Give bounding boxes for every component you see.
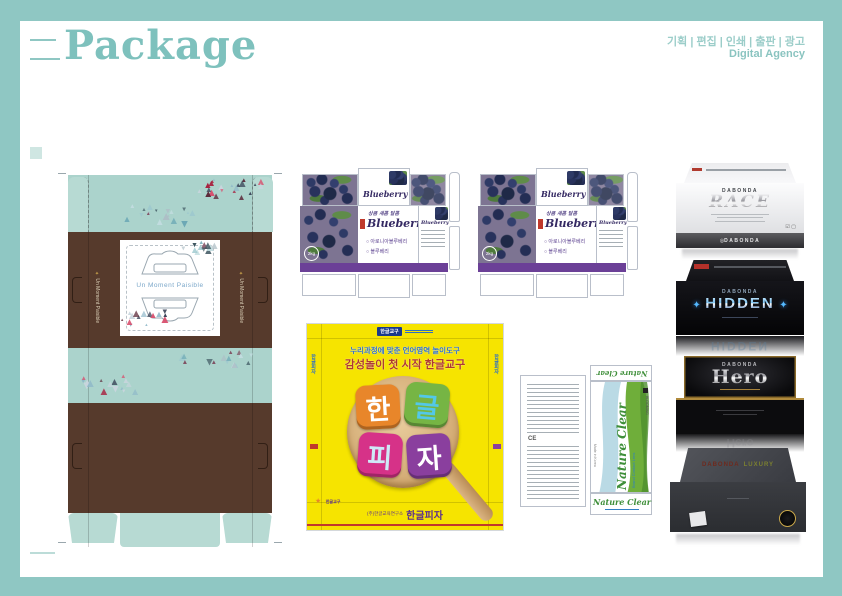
title-dash-icon: [30, 39, 56, 41]
triangle-glyph: ▲: [125, 318, 135, 328]
fine-print: [421, 230, 445, 248]
page-title: Package: [64, 22, 257, 69]
bottom-flap: [536, 274, 588, 298]
triangle-glyph: ▲: [144, 323, 148, 327]
triangle-glyph: ▲: [105, 380, 115, 390]
option-row: ○ 아로니아블루베리: [366, 238, 407, 245]
agency-services: 기획 | 편집 | 인쇄 | 출판 | 광고: [667, 33, 805, 49]
fine-print: [727, 498, 749, 499]
box-base: ◎ DABONDA: [676, 233, 804, 248]
tea-back-panel: [68, 403, 272, 513]
slip-label: [689, 511, 707, 527]
triangle-glyph: ▲: [207, 179, 216, 188]
gold-rule: [720, 389, 760, 390]
box-top-face: [686, 260, 794, 281]
triangle-glyph: ▲: [180, 244, 187, 251]
triangle-glyph: ▲: [237, 193, 245, 202]
nature-clear-dieline: CE Nature Clear Nature Clear Brand Conta…: [520, 365, 660, 520]
product-title: Hero: [684, 368, 796, 387]
product-box-race: DABONDA RACE ☑ ▢ ◎ DABONDA: [676, 163, 804, 259]
top-flap: Nature Clear: [590, 365, 652, 381]
red-edge-line: [307, 524, 503, 526]
triangle-glyph: ▲: [164, 207, 172, 215]
product-title: LUXURY: [744, 462, 774, 468]
frame-top: [0, 0, 842, 21]
triangle-glyph: ▲: [138, 210, 145, 217]
blueberry-side-panel: Blueberry: [596, 206, 627, 263]
triangle-glyph: ▲: [154, 208, 159, 213]
blueberry-photo: [302, 174, 358, 206]
triangle-glyph: ▲: [139, 309, 150, 320]
fine-print: [722, 317, 758, 318]
tea-lid-flap: [68, 177, 89, 232]
frame-right: [823, 0, 842, 596]
box-top-face: [684, 163, 796, 183]
weight-badge: 2kg: [304, 246, 319, 261]
end-flap: [449, 226, 460, 270]
triangle-glyph: ▲: [237, 352, 245, 360]
end-flap: [627, 226, 638, 270]
front-panel: Nature Clear Brand Contact Lens Made in …: [590, 381, 652, 493]
label-mark: [694, 264, 709, 269]
origin-label: Made in Korea: [593, 444, 597, 490]
maker-mark: [643, 388, 648, 393]
tea-side-label: ✦ Un Moment Paisible: [94, 271, 100, 341]
check-icons: ☑ ▢: [785, 224, 796, 230]
edge-mark-square: [30, 147, 42, 159]
triangle-glyph: ▲: [182, 360, 189, 367]
fine-print: [711, 214, 769, 215]
reflection: [676, 534, 800, 547]
pizza-piece-letter: 자: [415, 436, 443, 477]
tea-window: Un Moment Paisible ▲▲▲▲▲▲▲▲▲▲▲▲ ▲▲▲▲▲▲▲▲…: [120, 240, 220, 336]
tea-box-dieline: ▲▲▲▲▲▲▲▲▲▲▲▲▲▲▲▲▲▲▲▲▲▲ ▲▲▲▲▲▲▲▲▲▲▲▲▲▲▲▲▲…: [68, 175, 272, 547]
blueberry-tagline: 상큼 새콤 달콤: [546, 210, 577, 217]
tea-side-label: ✦ Un Moment Paisible: [238, 271, 244, 341]
handle-cut: [258, 443, 268, 469]
side-strip-label: 한글피자: [310, 354, 317, 434]
top-logo-rule: [405, 330, 433, 333]
bottom-flap: [590, 274, 624, 296]
triangle-glyph: ▲: [211, 360, 217, 366]
blueberry-photo: 2kg: [300, 206, 358, 263]
triangle-glyph: ▲: [187, 209, 197, 219]
blueberry-photo: [410, 174, 446, 206]
bottom-flap: [412, 274, 446, 296]
guide-line: [307, 338, 503, 339]
pizza-piece-letter: 피: [366, 435, 394, 476]
triangle-glyph: ▲: [120, 318, 124, 322]
pizza-piece: 한: [355, 384, 401, 430]
box-top-face: DABONDA Hero: [684, 356, 796, 398]
product-title: Nature Clear: [615, 390, 629, 490]
side-strip-label: 한글피자: [493, 354, 500, 434]
triangle-pattern: ▲▲▲▲▲▲▲▲▲▲▲▲▲▲▲▲: [76, 373, 142, 397]
purple-stripe: [300, 263, 448, 272]
product-box-hero: DABONDA Hero Hero: [676, 356, 804, 452]
mascot-logo: ★ 한글교구: [315, 490, 357, 502]
headline-2: 감성놀이 첫 시작 한글교구: [307, 356, 503, 372]
bottom-flap: [358, 274, 410, 298]
maker-label: BLOOMING: [645, 396, 649, 436]
triangle-glyph: ▲: [160, 315, 171, 326]
brand-mark: [538, 219, 543, 229]
frame-left: [0, 0, 20, 596]
round-badge: [779, 510, 796, 527]
triangle-glyph: ▲: [146, 213, 151, 218]
blueberry-tagline: 상큼 새콤 달콤: [368, 210, 399, 217]
blueberry-side-title: Blueberry: [421, 220, 449, 226]
brand-mark: [360, 219, 365, 229]
product-title: RACE: [676, 194, 804, 211]
triangle-glyph: ▲: [129, 204, 135, 210]
handle-cut: [72, 443, 82, 469]
box-footer: (주)한글교육연구소 한글피자: [307, 508, 503, 520]
blueberry-photo: [613, 207, 626, 220]
agency-name: Digital Agency: [729, 48, 805, 60]
fine-print: [723, 414, 757, 415]
bottom-flap: [480, 274, 534, 296]
flare-icon: ✦: [779, 300, 787, 311]
end-flap: [449, 172, 460, 222]
fine-print: [715, 221, 765, 222]
product-box-hidden: DABONDA ✦ HIDDEN ✦ HIDDEN: [676, 260, 804, 356]
flap-title: Nature Clear: [591, 366, 653, 382]
pizza-piece-letter: 글: [413, 384, 441, 425]
top-logo-text: 한글교구: [377, 327, 401, 336]
fine-print: [714, 266, 786, 268]
triangle-glyph: ▲: [120, 374, 126, 380]
blueberry-photo: [567, 171, 585, 185]
blueberry-flap-title: Blueberry: [541, 189, 585, 199]
flare-icon: ✦: [692, 300, 700, 311]
triangle-glyph: ▲: [196, 189, 202, 195]
fine-print: [599, 230, 623, 248]
reflection: HIDDEN: [676, 336, 804, 356]
fold-line: [88, 175, 89, 547]
blueberry-photo: [480, 174, 536, 206]
crop-mark: [58, 173, 66, 174]
triangle-glyph: ▲: [180, 352, 189, 361]
triangle-glyph: ▲: [130, 388, 140, 398]
fine-print: [706, 169, 786, 171]
headline-1: 누리과정에 맞춘 언어영역 놀이도구: [307, 345, 503, 356]
blueberry-top-flap: Blueberry: [358, 168, 410, 206]
top-logo: 한글교구: [367, 327, 443, 336]
mascot-text: 한글교구: [326, 499, 341, 504]
blueberry-side-title: Blueberry: [599, 220, 627, 226]
triangle-pattern: ▲▲▲▲▲▲▲▲▲▲▲▲▲▲▲▲▲▲: [120, 203, 204, 229]
triangle-glyph: ▲: [121, 387, 126, 392]
footer-small: (주)한글교육연구소: [367, 511, 403, 517]
product-subtitle: Brand Contact Lens: [631, 398, 636, 488]
triangle-glyph: ▲: [256, 182, 266, 192]
blueberry-main-panel: 상큼 새콤 달콤 Blueberry ○ 아로니아블루베리 ○ 블루베리: [358, 206, 418, 263]
pizza-piece: 글: [403, 381, 451, 429]
label-mark: [692, 168, 702, 171]
triangle-glyph: ▲: [247, 192, 253, 198]
triangle-glyph: ▲: [202, 241, 213, 253]
end-flap: [627, 172, 638, 222]
flap-title: Nature Clear: [591, 497, 653, 507]
tea-bottom-flap: [120, 513, 220, 547]
box-front-face: [670, 482, 806, 532]
blueberry-flap-title: Blueberry: [363, 189, 407, 199]
box-front-face: DABONDA RACE ☑ ▢: [676, 183, 804, 233]
crop-mark: [58, 542, 66, 543]
blueberry-top-flap: Blueberry: [536, 168, 588, 206]
triangle-glyph: ▲: [84, 378, 96, 390]
option-row: ○ 블루베리: [366, 248, 389, 255]
edge-mark-line: [30, 552, 55, 554]
triangle-glyph: ▲: [231, 183, 242, 194]
ce-mark: CE: [528, 436, 536, 442]
base-brand: DABONDA: [724, 238, 760, 244]
triangle-pattern: ▲▲▲▲▲▲▲▲▲▲▲▲▲▲▲▲: [176, 348, 262, 370]
hangul-pizza-box: 한글교구 누리과정에 맞춘 언어영역 놀이도구 감성놀이 첫 시작 한글교구 한…: [306, 323, 504, 531]
triangle-glyph: ▲: [155, 218, 165, 228]
title-dash-icon: [30, 58, 60, 60]
blueberry-side-panel: Blueberry: [418, 206, 449, 263]
side-strip-mark: [493, 444, 501, 449]
option-row: ○ 아로니아블루베리: [544, 238, 585, 245]
box-top-face: DABONDA LUXURY: [680, 448, 796, 482]
blueberry-main-panel: 상큼 새콤 달콤 Blueberry ○ 아로니아블루베리 ○ 블루베리: [536, 206, 596, 263]
bottom-flap: Nature Clear: [590, 493, 652, 515]
box-front-face: [676, 398, 804, 434]
triangle-pattern: ▲▲▲▲▲▲▲▲▲▲▲▲: [172, 240, 218, 258]
pizza-piece-letter: 한: [365, 387, 392, 427]
triangle-glyph: ▲: [99, 379, 104, 384]
tea-window-label: Un Moment Paisible: [120, 282, 220, 289]
product-title: HIDDEN: [705, 295, 775, 312]
handle-cut: [258, 277, 268, 303]
blueberry-photo: [435, 207, 448, 220]
blueberry-dieline: Blueberry 2kg 상큼 새콤 달콤 Blueberry ○ 아로니아블…: [478, 168, 640, 298]
triangle-glyph: ▲: [179, 218, 190, 229]
frame-bottom: [0, 577, 842, 596]
fine-print: [527, 446, 579, 500]
crop-mark: [274, 542, 282, 543]
tea-bottom-flap: [222, 513, 272, 543]
blueberry-dieline: Blueberry 2kg 상큼 새콤 달콤 Blueberry ○ 아로니아블…: [300, 168, 462, 298]
pizza-piece: 피: [357, 432, 404, 479]
box-front-face: DABONDA ✦ HIDDEN ✦: [676, 281, 804, 335]
fine-print: [717, 217, 763, 218]
triangle-glyph: ▲: [248, 351, 254, 357]
option-row: ○ 블루베리: [544, 248, 567, 255]
tea-bottom-flap: [68, 513, 118, 543]
triangle-glyph: ▲: [203, 190, 213, 200]
triangle-glyph: ▲: [230, 361, 240, 371]
triangle-pattern: ▲▲▲▲▲▲▲▲▲▲▲▲▲▲▲▲: [120, 308, 174, 334]
product-box-luxury: DABONDA LUXURY: [670, 448, 806, 548]
purple-stripe: [478, 263, 626, 272]
mascot-icon: ★: [315, 498, 321, 505]
crop-mark: [274, 173, 282, 174]
instruction-panel: CE: [520, 375, 586, 507]
fine-print: [716, 410, 764, 411]
flap-rule: [605, 509, 639, 510]
blueberry-photo: 2kg: [478, 206, 536, 263]
brand-label: DABONDA: [702, 462, 740, 468]
triangle-glyph: ▲: [123, 215, 132, 224]
reflection-title: HIDDEN: [711, 339, 769, 353]
top-brand-row: DABONDA LUXURY: [680, 448, 796, 482]
footer-title: 한글피자: [406, 507, 443, 522]
side-strip-mark: [310, 444, 318, 449]
fine-print: [527, 384, 579, 434]
triangle-glyph: ▲: [245, 360, 252, 367]
blueberry-photo: [588, 174, 624, 206]
bottom-flap: [302, 274, 356, 296]
weight-badge: 2kg: [482, 246, 497, 261]
blueberry-photo: [389, 171, 407, 185]
triangle-pattern: ▲▲▲▲▲▲▲▲▲▲▲▲▲▲▲▲▲▲▲▲▲▲: [196, 177, 268, 203]
pizza-piece: 자: [406, 433, 453, 480]
handle-cut: [72, 277, 82, 303]
triangle-glyph: ▲: [219, 186, 225, 192]
